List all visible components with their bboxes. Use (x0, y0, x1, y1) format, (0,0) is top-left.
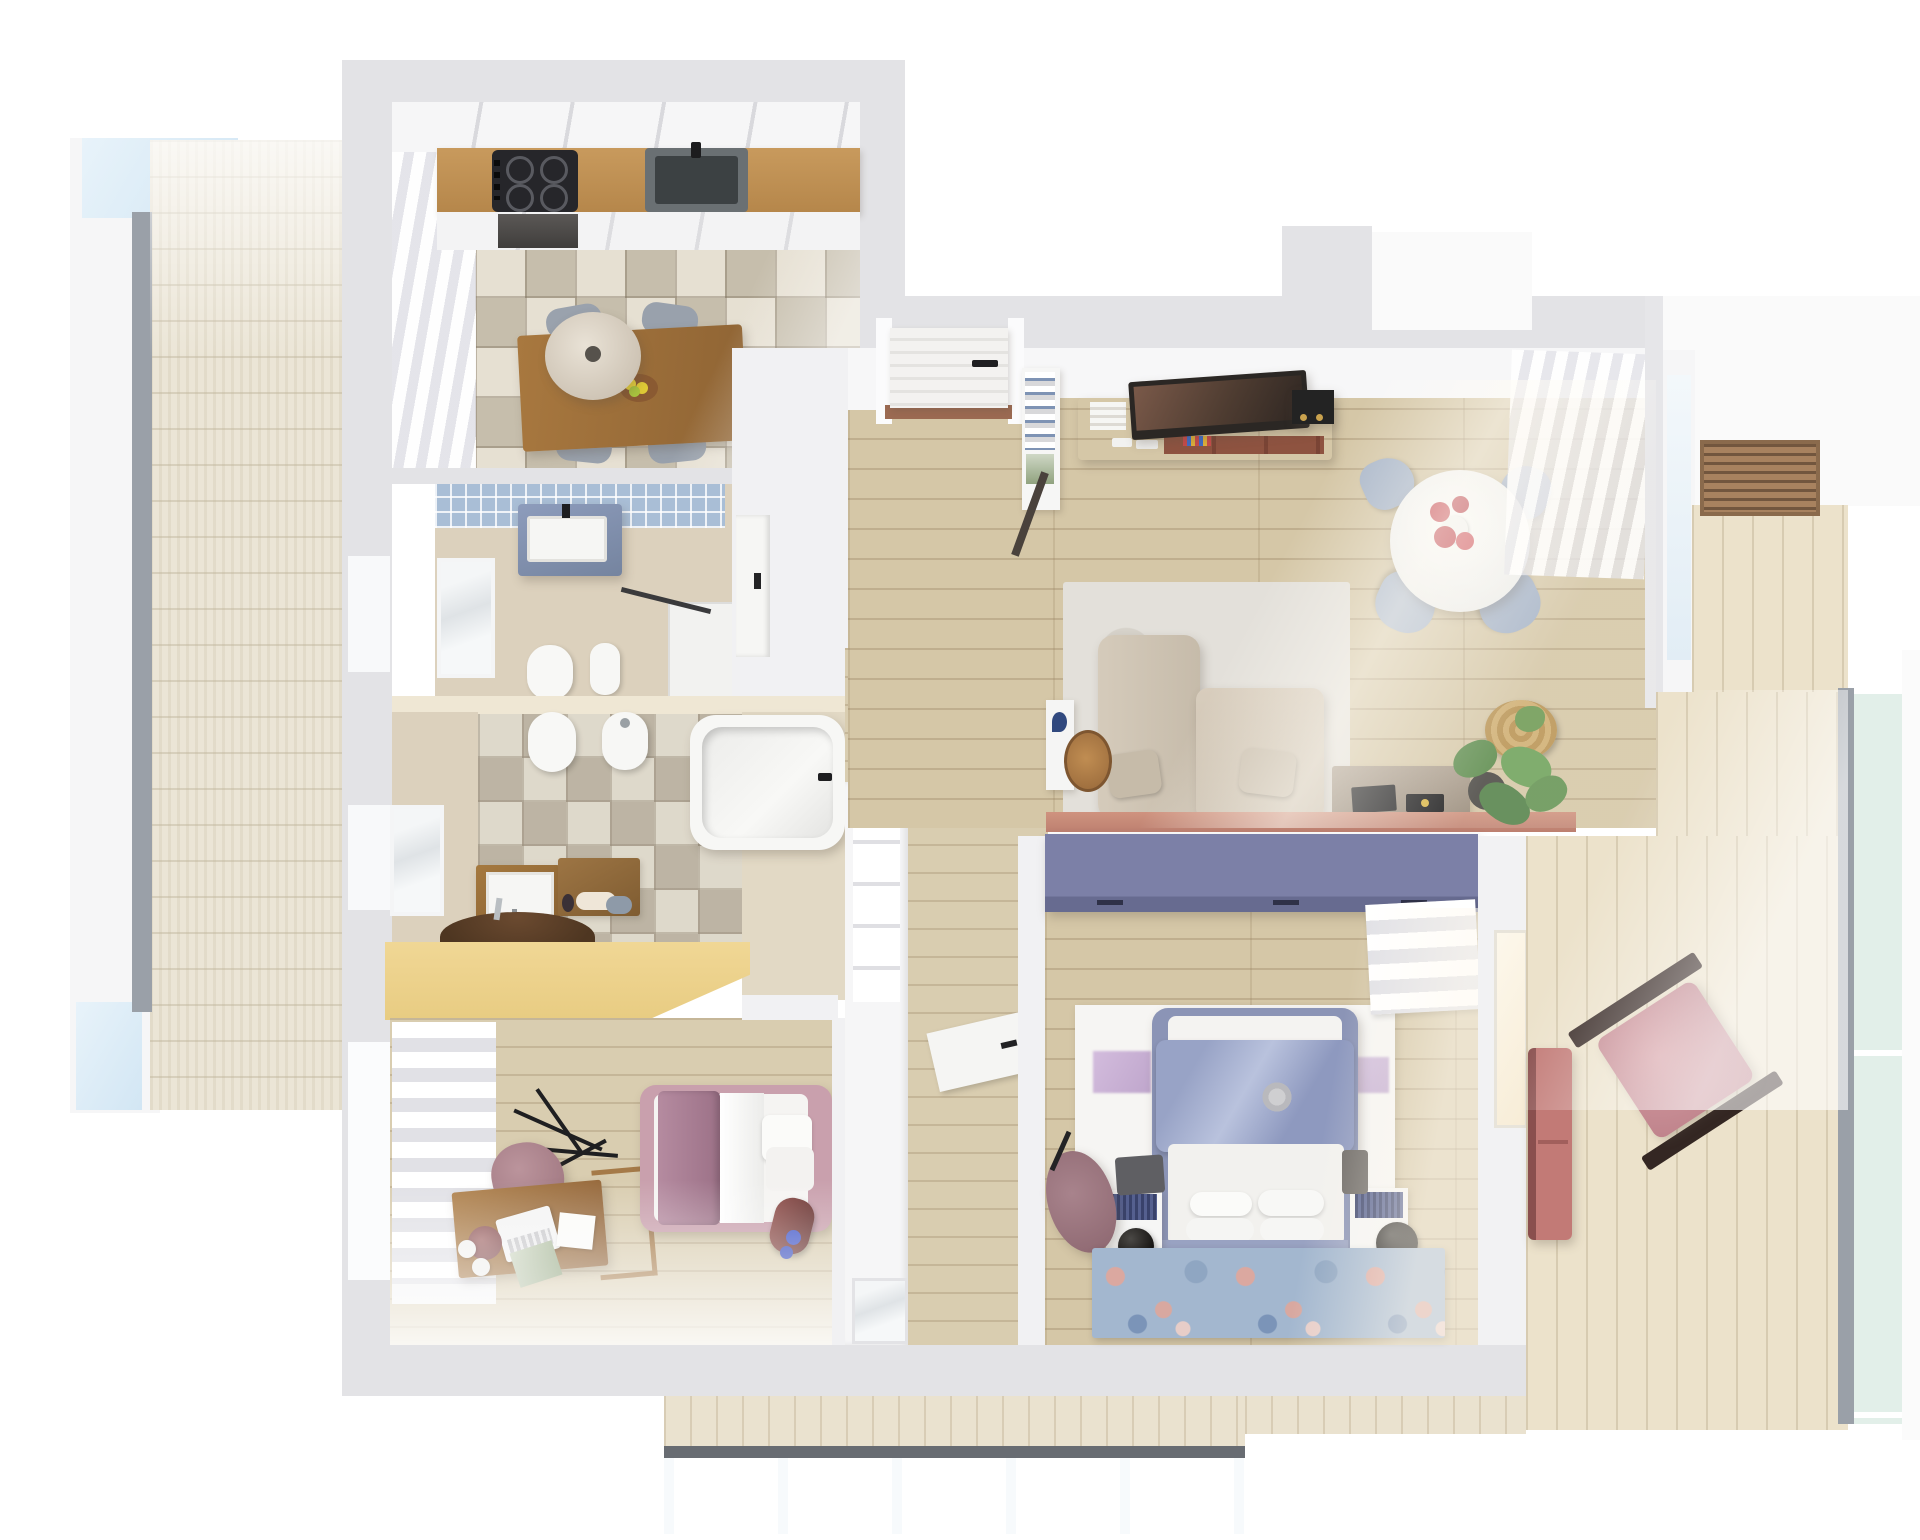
door-handle-icon (754, 573, 761, 589)
speaker-knob (1316, 414, 1323, 421)
record-label (1421, 799, 1429, 807)
cooktop-knobs (494, 160, 500, 200)
bottle (562, 894, 574, 912)
door-handle-icon (1001, 1040, 1018, 1049)
balcony-left-mullion (132, 212, 152, 1012)
floor-plan-canvas (0, 0, 1920, 1540)
loveseat-cushion-split (1538, 1140, 1568, 1144)
remote-control (1112, 438, 1132, 447)
cooktop-burner (540, 184, 568, 212)
wall-kitchen-top (342, 60, 905, 102)
wardrobe-handle (1273, 900, 1299, 905)
tv-screen (1134, 375, 1305, 431)
wall-kitchen-right (860, 60, 905, 300)
bath-top-window (437, 558, 495, 678)
pendant-lamp (545, 312, 641, 400)
balcony-bottom-deck (664, 1396, 1245, 1450)
shower-tray (668, 602, 738, 704)
red-gerbera (1456, 532, 1474, 550)
oven (498, 214, 578, 248)
cooktop-burner (506, 156, 534, 184)
red-gerbera (1434, 526, 1456, 548)
bedside-bench (1115, 1154, 1166, 1195)
speaker-box (1292, 390, 1334, 424)
kitchen-sink-basin (655, 156, 738, 204)
master-bed-frame (1152, 1008, 1358, 1278)
balcony-left-glass-bottom (76, 1002, 142, 1110)
cup (458, 1240, 476, 1258)
vent-grille (1700, 440, 1820, 516)
kids-bed-blanket (658, 1091, 720, 1225)
pillow-roll (1258, 1190, 1324, 1216)
bathtub (690, 715, 845, 850)
remote-control (1136, 440, 1158, 449)
blue-vase (1052, 712, 1067, 732)
balcony-left-deck (150, 140, 345, 1110)
wall-bedroom-left (1018, 836, 1048, 1345)
low-sideboard (1332, 766, 1470, 818)
entry-left-jamb-wall (848, 348, 878, 410)
bathtub-bowl (702, 727, 833, 838)
bath-bottom-shelf (558, 858, 640, 916)
kids-wardrobe-yellow (385, 942, 750, 1020)
black-laptop (1351, 784, 1397, 813)
master-window-glass (1494, 930, 1528, 1128)
pink-loveseat (1528, 1048, 1572, 1240)
window-recess-bath-top (348, 556, 390, 672)
red-gerbera (1452, 496, 1469, 513)
door-handle-icon (972, 360, 998, 367)
duvet-grommet (1260, 1080, 1294, 1114)
pillow-roll (1190, 1192, 1252, 1216)
lime (629, 386, 640, 397)
bedside-runner (1342, 1150, 1368, 1194)
entrance-door (890, 328, 1008, 408)
bath-top-toilet (527, 645, 573, 700)
railing-outer-white (1902, 650, 1920, 1440)
soap-dish (606, 896, 632, 914)
blue-cap (780, 1246, 793, 1259)
window-recess-bath-bottom (348, 805, 390, 910)
cup (472, 1258, 490, 1276)
bath-top-faucet (562, 504, 570, 518)
nightstand-top (1355, 1192, 1403, 1218)
bath-top-door (736, 515, 770, 657)
bathtub-faucet (818, 773, 832, 781)
wall-kids-top (742, 995, 838, 1020)
bath-top-basin (527, 516, 607, 562)
bath-bottom-toilet (528, 712, 576, 772)
balcony-bottom-glass (664, 1458, 1245, 1534)
kitchen-sink (645, 148, 748, 212)
master-roman-shade (1365, 899, 1481, 1015)
balcony-right-deck-top (1692, 505, 1848, 695)
hat-plant (1515, 706, 1545, 732)
balcony-bottom-deck-right (1245, 1396, 1526, 1434)
blue-cap (786, 1230, 801, 1245)
vinyl-record (1406, 794, 1444, 812)
speaker-knob (1300, 414, 1307, 421)
balcony-right-deck-mid (1656, 692, 1848, 838)
pendant-lamp-cap (585, 346, 601, 362)
bath-top-bidet (590, 643, 620, 695)
master-white-blanket (1168, 1144, 1344, 1244)
sofa-pillow (1105, 749, 1163, 800)
hallway-closet (845, 782, 908, 1345)
wall-step-top-right (1282, 226, 1372, 316)
wood-disc-table (1064, 730, 1112, 792)
red-gerbera (1430, 502, 1450, 522)
balcony-bottom-track (664, 1446, 1245, 1458)
sofa-pillow (1237, 747, 1297, 798)
papers (556, 1212, 595, 1250)
kids-window-sill (392, 1284, 496, 1304)
books (1025, 372, 1055, 450)
dvd-spines (1183, 436, 1211, 446)
nightstand-top (1111, 1194, 1157, 1220)
tv (1128, 370, 1310, 440)
kids-bed-pillow (766, 1147, 814, 1191)
wall-white-top-right (1372, 232, 1532, 330)
floral-rug (1092, 1248, 1445, 1338)
cooktop-burner (506, 184, 534, 212)
kitchen-upper-cabinets (392, 102, 860, 152)
washer-niche (852, 1278, 908, 1344)
master-duvet (1156, 1040, 1354, 1152)
cooktop (492, 150, 578, 212)
closet-shelves (853, 802, 900, 1002)
kitchen-faucet (691, 142, 701, 158)
pillow-roll (1186, 1218, 1254, 1242)
railing-frame (1838, 688, 1854, 1424)
bath-bottom-window (390, 805, 444, 916)
bath-bottom-bidet (602, 712, 648, 770)
kids-bed-duvet-fold (720, 1093, 764, 1223)
wardrobe-handle (1097, 900, 1123, 905)
pillow-roll (1260, 1218, 1324, 1242)
railing-glass-green (1854, 688, 1902, 1424)
bidet-faucet (620, 718, 630, 728)
cooktop-burner (540, 156, 568, 184)
wall-bottom (342, 1342, 1528, 1396)
book-stack (1090, 402, 1126, 430)
master-wardrobe-purple (1045, 834, 1478, 912)
living-window-glass (1667, 375, 1691, 660)
bath-top-vanity-blue (518, 504, 622, 576)
living-right-wall (1645, 296, 1663, 708)
living-sheer-curtain (1504, 350, 1652, 580)
lilac-artwork (1093, 1051, 1151, 1093)
window-recess-kids (348, 1042, 390, 1280)
